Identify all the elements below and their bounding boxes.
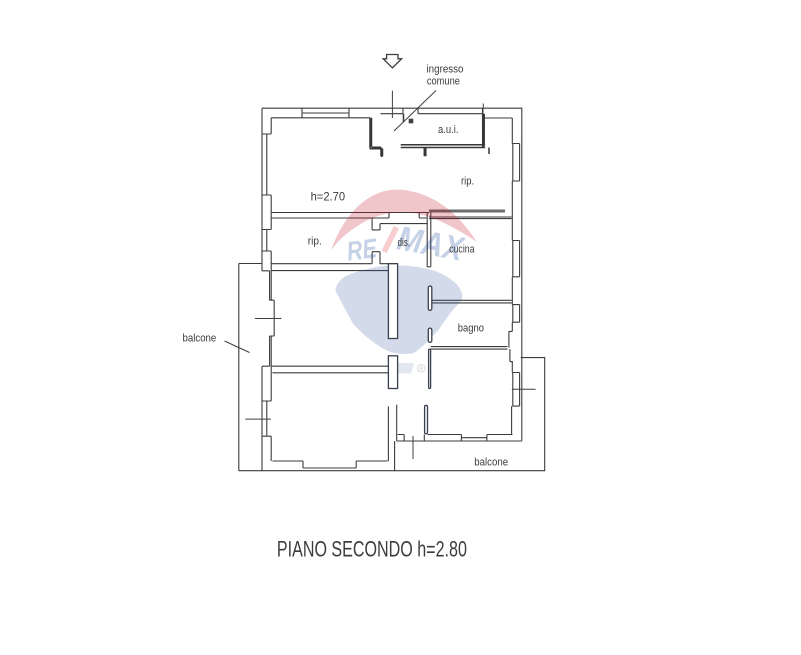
svg-text:R: R bbox=[419, 367, 424, 373]
svg-text:PIANO SECONDO h=2.80: PIANO SECONDO h=2.80 bbox=[277, 536, 467, 561]
svg-text:a.u.i.: a.u.i. bbox=[438, 124, 459, 136]
svg-text:rip.: rip. bbox=[308, 236, 322, 248]
svg-text:dis.: dis. bbox=[398, 237, 411, 249]
svg-text:balcone: balcone bbox=[183, 333, 217, 345]
svg-text:RE: RE bbox=[345, 233, 379, 267]
svg-text:h=2.70: h=2.70 bbox=[311, 190, 346, 204]
svg-text:ingresso: ingresso bbox=[427, 63, 464, 75]
svg-text:balcone: balcone bbox=[474, 456, 508, 468]
svg-text:comune: comune bbox=[427, 76, 460, 88]
svg-text:bagno: bagno bbox=[458, 322, 484, 334]
svg-text:cucina: cucina bbox=[449, 244, 475, 256]
svg-text:rip.: rip. bbox=[461, 176, 474, 188]
